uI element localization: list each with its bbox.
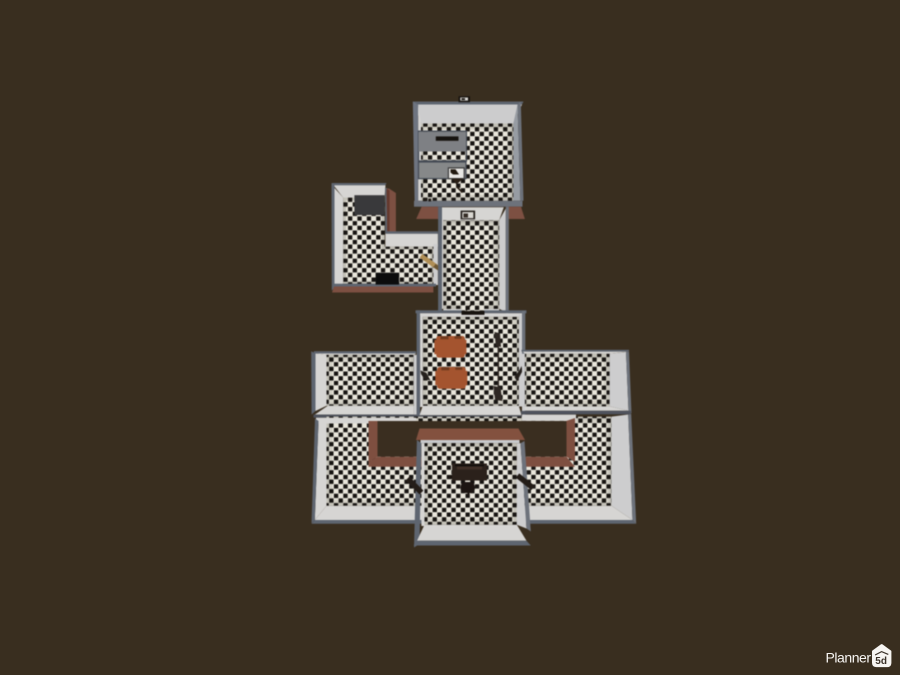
svg-text:Planner: Planner <box>826 649 872 665</box>
svg-text:5d: 5d <box>875 656 887 667</box>
